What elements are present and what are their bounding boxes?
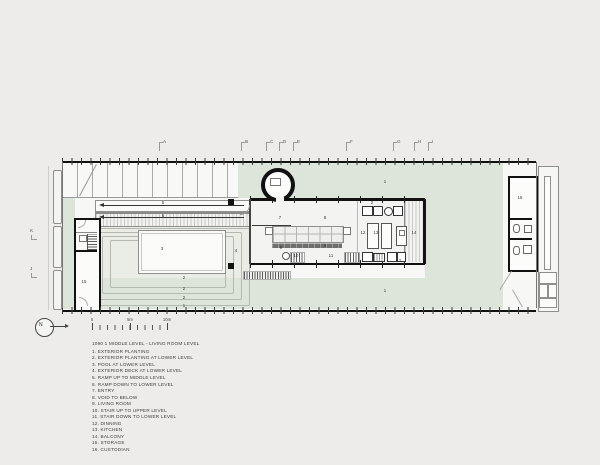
grid-label-top: B bbox=[245, 140, 248, 145]
custodian-outbuilding bbox=[508, 176, 538, 272]
plan-room-number: 7 bbox=[279, 216, 282, 220]
custodian-divider bbox=[510, 238, 532, 240]
plan-room-number: 15 bbox=[82, 280, 87, 284]
site-boundary-bottom bbox=[62, 307, 536, 314]
legend-items: 1. EXTERIOR PLANTING2. EXTERIOR PLANTING… bbox=[92, 349, 282, 454]
drawing-sheet: 111222223456788910111213141516 ABCDEFGHI… bbox=[0, 0, 600, 465]
plan-room-number: 8 bbox=[324, 216, 327, 220]
outbuilding-stair bbox=[87, 234, 97, 250]
grid-label-top: G bbox=[397, 140, 401, 145]
plan-room-number: 3 bbox=[161, 247, 164, 251]
kitchen-counter bbox=[396, 226, 407, 246]
plan-room-number: 2 bbox=[183, 287, 186, 291]
ramp-up-arrow bbox=[104, 205, 244, 206]
dining-table bbox=[367, 223, 379, 249]
plan-room-number: 16 bbox=[518, 196, 523, 200]
site-boundary-top bbox=[62, 158, 536, 165]
appliance bbox=[373, 206, 383, 216]
custodian-divider bbox=[510, 218, 532, 220]
plan-room-number: 11 bbox=[329, 254, 334, 258]
north-arrowhead bbox=[65, 324, 69, 328]
plan-room-number: 2 bbox=[371, 201, 374, 205]
grid-label-left: K bbox=[30, 229, 33, 234]
house-wall-right bbox=[423, 199, 426, 264]
stair-down-treads bbox=[344, 252, 360, 263]
grid-label-left: J bbox=[30, 267, 32, 272]
right-strip-cell bbox=[548, 284, 557, 298]
tower-fixture bbox=[270, 178, 281, 186]
ramp-down-arrow bbox=[104, 217, 244, 218]
right-strip-inner bbox=[544, 176, 551, 270]
right-strip-cell bbox=[539, 298, 557, 308]
plan-room-number: 6 bbox=[162, 214, 165, 218]
plan-room-number: 2 bbox=[399, 259, 402, 263]
pier-column bbox=[228, 263, 234, 269]
plan-room-number: 12 bbox=[361, 231, 366, 235]
plan-room-number: 1 bbox=[384, 289, 387, 293]
scale-tick-label: 5m bbox=[127, 317, 133, 322]
grid-label-top: F bbox=[350, 140, 353, 145]
grid-label-top: I bbox=[432, 140, 433, 145]
plan-room-number: 2 bbox=[183, 276, 186, 280]
ramp-down bbox=[95, 212, 253, 227]
site-boundary-left bbox=[62, 162, 63, 308]
appliance bbox=[373, 253, 385, 262]
storage-divider bbox=[76, 250, 97, 252]
cooktop bbox=[399, 230, 405, 236]
right-strip-cell bbox=[539, 284, 548, 298]
pier-column bbox=[228, 199, 234, 205]
toilet-fixture bbox=[513, 246, 520, 255]
shower-fixture bbox=[523, 245, 532, 254]
appliance bbox=[384, 207, 393, 216]
ramp-up-arrowhead bbox=[99, 203, 104, 207]
pool-inner-edge bbox=[141, 233, 223, 271]
plan-room-number: 1 bbox=[183, 304, 186, 308]
side-table bbox=[343, 227, 351, 235]
left-wall-segment bbox=[53, 270, 62, 310]
grid-label-top: H bbox=[418, 140, 421, 145]
site-boundary-right bbox=[536, 162, 537, 308]
storage-shelf-line bbox=[76, 232, 97, 233]
plan-room-number: 13 bbox=[374, 231, 379, 235]
scale-tick bbox=[130, 323, 131, 330]
side-table bbox=[265, 227, 273, 235]
toilet-fixture bbox=[513, 224, 520, 233]
grid-label-top: C bbox=[270, 140, 273, 145]
kitchen-island bbox=[381, 223, 392, 249]
trellis-strip bbox=[63, 163, 238, 198]
north-arrow bbox=[35, 318, 54, 337]
north-arrow-line bbox=[50, 326, 66, 327]
left-wall-segment bbox=[53, 226, 62, 268]
drawing-title: 1090 1 MIDDLE LEVEL - LIVING ROOM LEVEL bbox=[92, 341, 282, 346]
scale-tick-label: 10m bbox=[163, 317, 171, 322]
sofa-group bbox=[272, 226, 344, 243]
north-label: N bbox=[39, 322, 43, 328]
interior-column-circle bbox=[282, 252, 290, 260]
right-strip-cell bbox=[539, 272, 557, 284]
left-wall-segment bbox=[53, 170, 62, 224]
plan-room-number: 9 bbox=[324, 244, 327, 248]
left-faint-line bbox=[48, 166, 49, 310]
plan-room-number: 1 bbox=[384, 180, 387, 184]
grid-label-top: E bbox=[297, 140, 300, 145]
plan-room-number: 14 bbox=[412, 231, 417, 235]
scale-tick bbox=[167, 323, 168, 330]
plan-room-number: 5 bbox=[162, 201, 165, 205]
legend-item: 16. CUSTODIAN bbox=[92, 447, 282, 454]
plan-room-number: 2 bbox=[183, 296, 186, 300]
appliance bbox=[362, 206, 373, 216]
grid-label-top: D bbox=[283, 140, 286, 145]
scale-tick-label: 0 bbox=[91, 317, 93, 322]
scale-tick bbox=[92, 323, 93, 330]
appliance bbox=[362, 252, 373, 262]
tower-opening bbox=[276, 197, 284, 203]
appliance bbox=[393, 206, 403, 216]
outbuilding-fixture bbox=[79, 235, 87, 242]
sink-fixture bbox=[524, 225, 532, 233]
plan-room-number: 8 bbox=[280, 246, 283, 250]
exterior-stair-hatch bbox=[243, 271, 291, 280]
plan-room-number: 4 bbox=[235, 249, 238, 253]
appliance bbox=[387, 252, 397, 262]
legend: 1090 1 MIDDLE LEVEL - LIVING ROOM LEVEL … bbox=[92, 341, 282, 454]
plan-room-number: 10 bbox=[294, 254, 299, 258]
grid-label-top: A bbox=[163, 140, 166, 145]
